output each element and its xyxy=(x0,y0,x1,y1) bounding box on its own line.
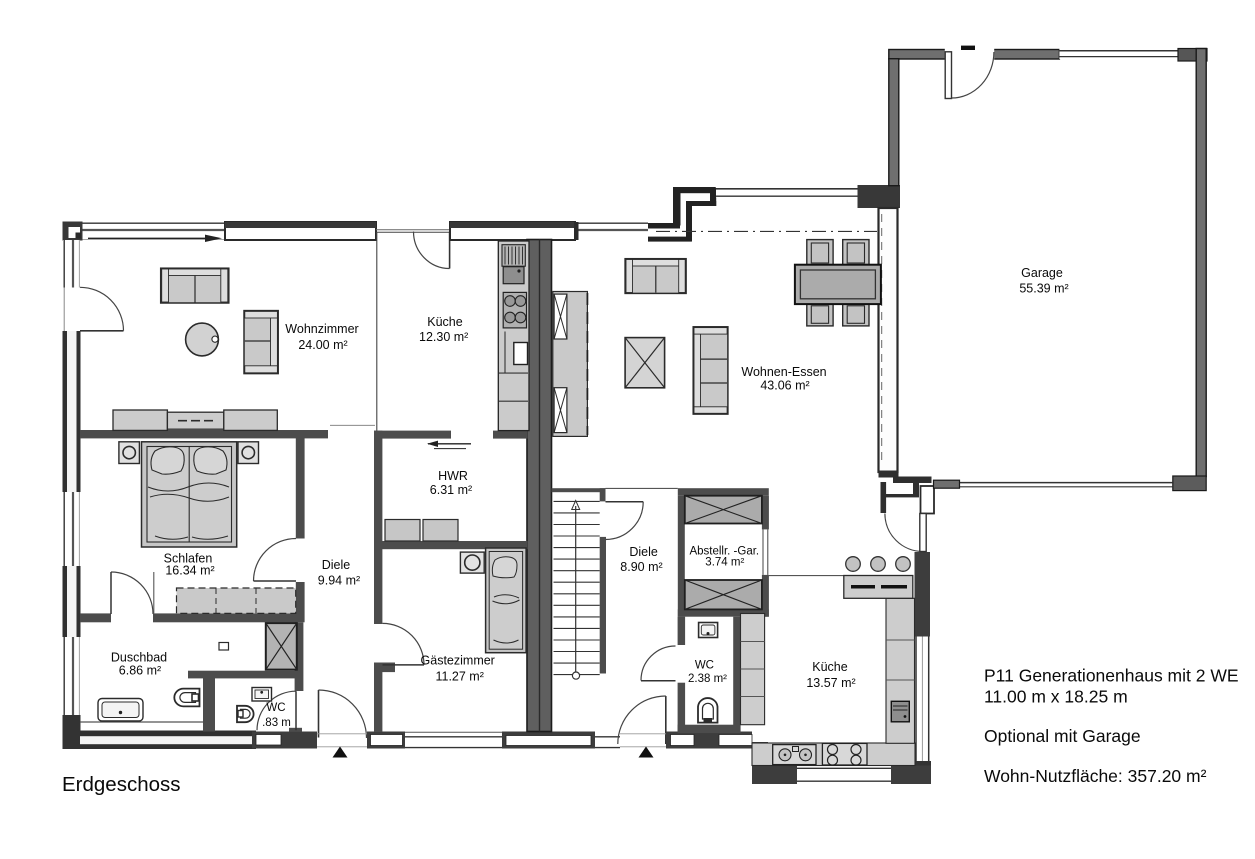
svg-text:Diele: Diele xyxy=(629,545,658,559)
svg-text:HWR: HWR xyxy=(438,469,468,483)
svg-text:2.38 m²: 2.38 m² xyxy=(688,673,727,685)
svg-text:WC: WC xyxy=(695,660,714,672)
svg-text:6.86 m²: 6.86 m² xyxy=(119,664,161,678)
svg-text:Duschbad: Duschbad xyxy=(111,651,167,665)
svg-text:16.34 m²: 16.34 m² xyxy=(165,564,214,578)
svg-text:Garage: Garage xyxy=(1021,266,1063,280)
svg-text:Küche: Küche xyxy=(812,660,847,674)
svg-text:11.00 m x 18.25 m: 11.00 m x 18.25 m xyxy=(984,687,1128,707)
svg-text:Wohnzimmer: Wohnzimmer xyxy=(285,322,358,336)
svg-text:24.00 m²: 24.00 m² xyxy=(298,338,347,352)
svg-text:55.39 m²: 55.39 m² xyxy=(1019,282,1068,296)
svg-text:Küche: Küche xyxy=(427,315,462,329)
svg-text:Erdgeschoss: Erdgeschoss xyxy=(62,773,181,796)
svg-text:3.74 m²: 3.74 m² xyxy=(705,557,744,569)
svg-text:Optional mit Garage: Optional mit Garage xyxy=(984,726,1141,746)
svg-text:6.31 m²: 6.31 m² xyxy=(430,483,472,497)
svg-text:Wohn-Nutzfläche: 357.20 m²: Wohn-Nutzfläche: 357.20 m² xyxy=(984,766,1207,786)
svg-text:8.90 m²: 8.90 m² xyxy=(620,560,662,574)
svg-text:43.06 m²: 43.06 m² xyxy=(760,379,809,393)
svg-text:Wohnen-Essen: Wohnen-Essen xyxy=(741,365,826,379)
svg-text:13.57 m²: 13.57 m² xyxy=(806,676,855,690)
svg-text:Gästezimmer: Gästezimmer xyxy=(421,654,495,668)
svg-text:P11 Generationenhaus mit 2 WE: P11 Generationenhaus mit 2 WE xyxy=(984,666,1239,686)
svg-text:9.94 m²: 9.94 m² xyxy=(318,574,360,588)
svg-text:12.30 m²: 12.30 m² xyxy=(419,330,468,344)
svg-text:11.27 m²: 11.27 m² xyxy=(435,670,483,684)
svg-text:.83 m: .83 m xyxy=(262,717,291,729)
svg-text:WC: WC xyxy=(266,702,285,714)
svg-text:Diele: Diele xyxy=(322,558,351,572)
